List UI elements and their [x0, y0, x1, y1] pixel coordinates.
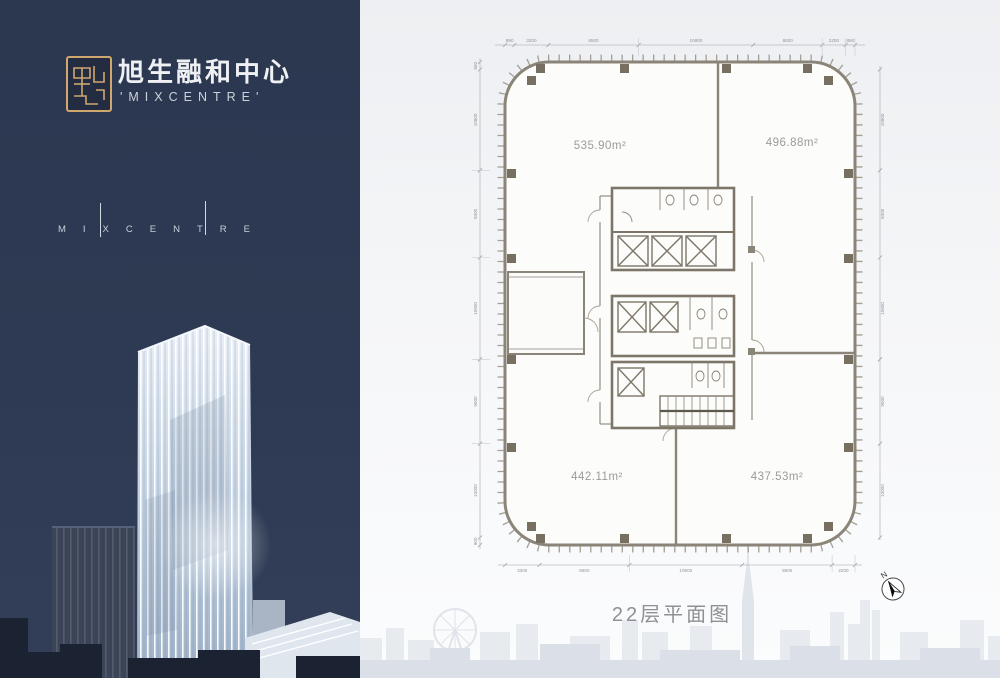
brand-title-en: 'MIXCENTRE' — [120, 90, 264, 104]
dim-label: 10800 — [690, 38, 703, 43]
dim-label: 8500 — [588, 38, 599, 43]
dim-label: 3200 — [526, 38, 537, 43]
wordmark-bar-i — [100, 203, 101, 237]
dim-label: 10800 — [473, 302, 478, 315]
wordmark-bar-n — [205, 201, 206, 235]
brand-block: 旭生融和中心 'MIXCENTRE' — [0, 0, 360, 150]
area-bottom-right: 437.53m² — [751, 471, 804, 483]
dim-label: 10800 — [880, 113, 885, 126]
dim-top: 890 3200 8500 10800 6500 2200 890 — [495, 38, 865, 56]
dim-label: 9000 — [473, 396, 478, 407]
poster: 旭生融和中心 'MIXCENTRE' MIXCENTRE — [0, 0, 1000, 678]
dim-label: 9000 — [880, 396, 885, 407]
area-top-left: 535.90m² — [574, 140, 627, 152]
brand-seal-icon — [66, 56, 112, 112]
dim-label: 10800 — [473, 113, 478, 126]
dim-label: 800 — [473, 537, 478, 545]
dim-label: 890 — [506, 38, 514, 43]
wordmark-text: MIXCENTRE — [58, 224, 318, 235]
dim-label: 3300 — [517, 568, 528, 573]
brand-title-cn: 旭生融和中心 — [118, 52, 292, 89]
brand-panel: 旭生融和中心 'MIXCENTRE' MIXCENTRE — [0, 0, 360, 678]
dim-label: 8600 — [579, 568, 590, 573]
dim-left: 800 10800 9300 10800 9000 10000 800 — [472, 58, 490, 549]
left-service-room — [508, 272, 598, 354]
dim-label: 9300 — [880, 208, 885, 219]
dim-label: 10800 — [679, 568, 692, 573]
dim-label: 10000 — [880, 484, 885, 497]
dim-label: 2200 — [829, 38, 840, 43]
dim-label: 2200 — [838, 568, 849, 573]
dim-label: 9300 — [473, 208, 478, 219]
floor-plan: 535.90m² 496.88m² 442.11m² 437.53m² 890 … — [360, 0, 1000, 678]
dim-label: 10800 — [880, 302, 885, 315]
tower-rendering — [0, 300, 360, 678]
dim-label: 800 — [473, 62, 478, 70]
dim-bottom: 3300 8600 10800 8600 2200 — [498, 555, 862, 573]
dim-label: 6500 — [783, 38, 794, 43]
dim-right: 10800 9300 10800 9000 10000 — [878, 66, 885, 540]
dim-label: 10000 — [473, 484, 478, 497]
plan-caption: 22层平面图 — [612, 598, 732, 627]
core — [612, 188, 734, 428]
main-tower — [137, 326, 271, 678]
area-top-right: 496.88m² — [766, 137, 819, 149]
area-bottom-left: 442.11m² — [571, 471, 623, 483]
dim-label: 890 — [846, 38, 854, 43]
north-compass-icon: N — [873, 565, 909, 604]
dim-label: 8600 — [782, 568, 793, 573]
